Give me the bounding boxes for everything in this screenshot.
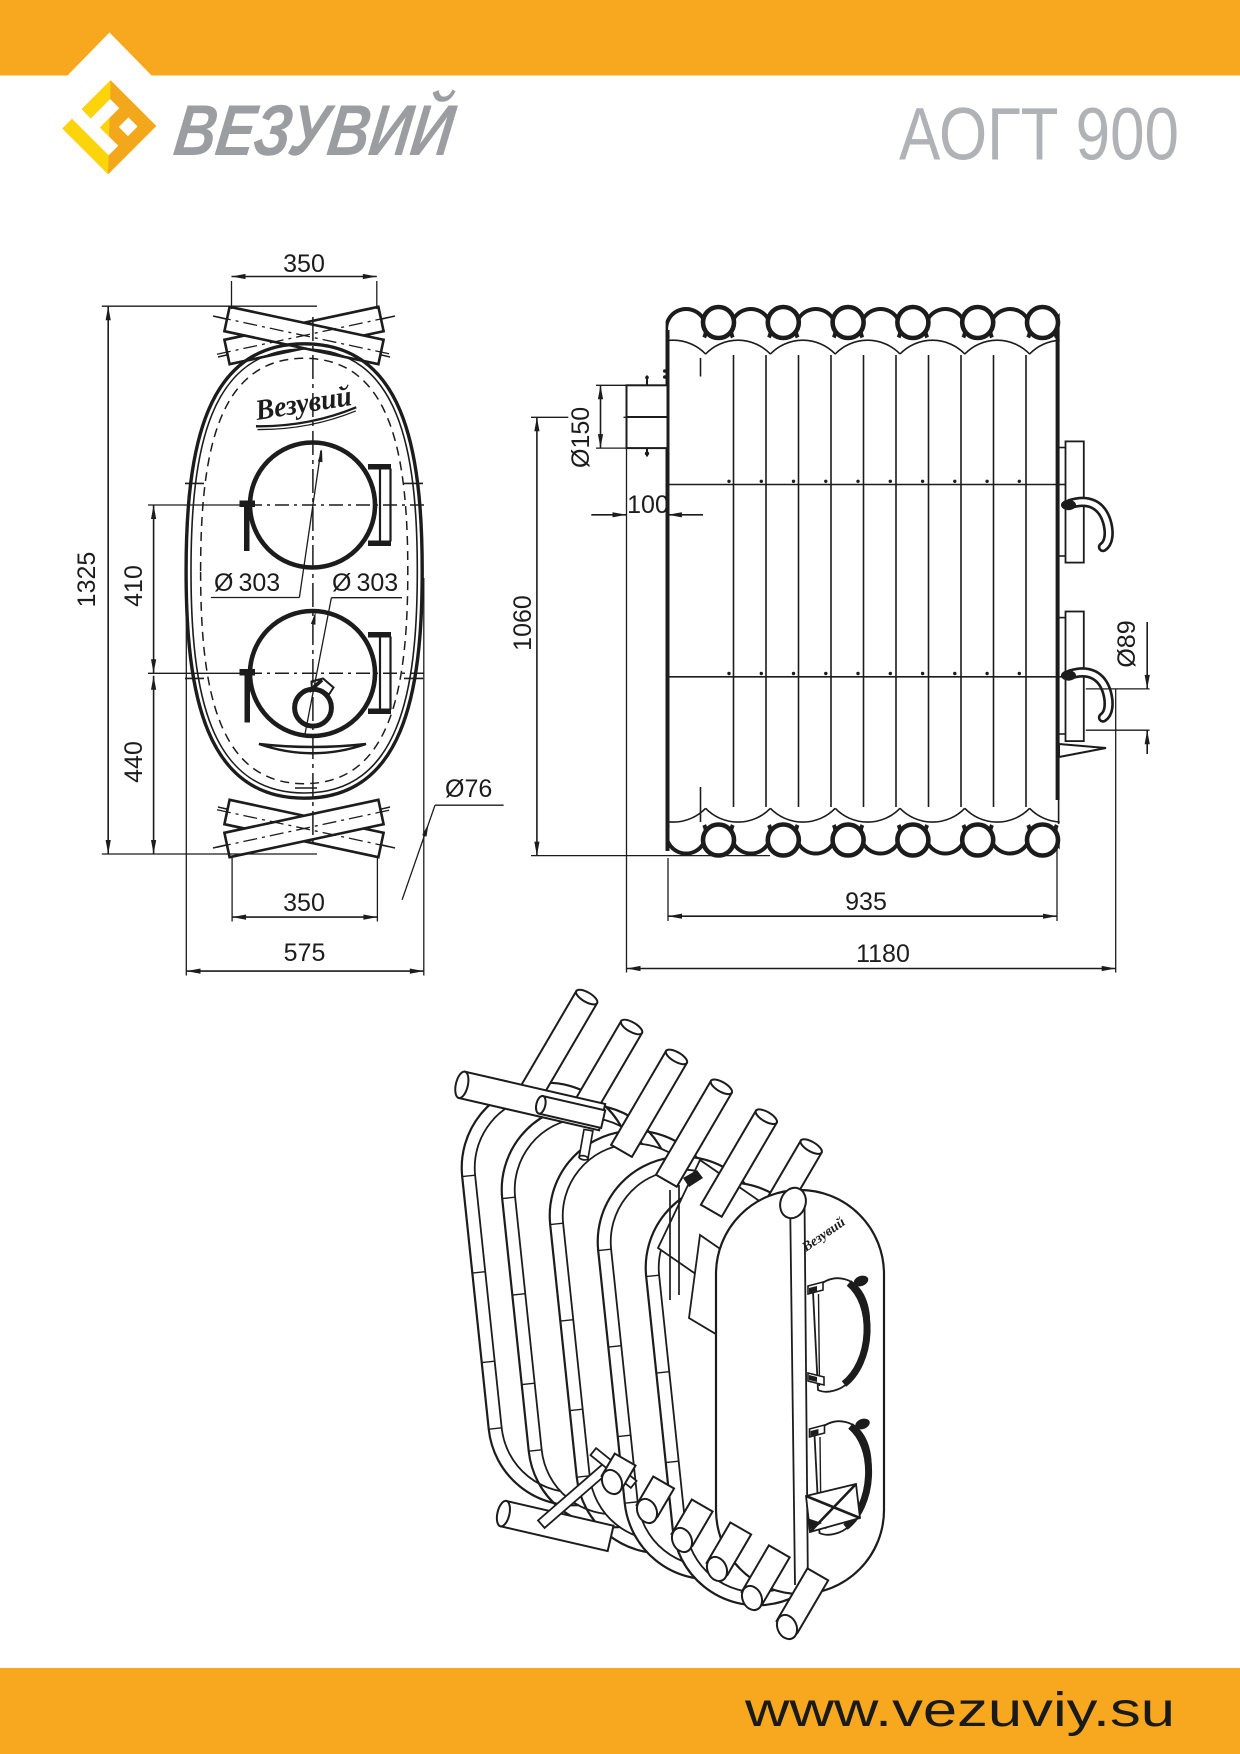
svg-text:1325: 1325 bbox=[73, 552, 101, 608]
svg-text:Ø 303: Ø 303 bbox=[214, 569, 280, 597]
svg-text:575: 575 bbox=[284, 939, 326, 967]
svg-text:Ø 303: Ø 303 bbox=[332, 569, 398, 597]
svg-text:410: 410 bbox=[120, 565, 148, 607]
svg-text:350: 350 bbox=[283, 889, 325, 917]
svg-text:ВЕЗУВИЙ: ВЕЗУВИЙ bbox=[170, 88, 461, 171]
svg-text:1180: 1180 bbox=[856, 940, 910, 968]
svg-text:Ø89: Ø89 bbox=[1113, 620, 1141, 667]
svg-text:935: 935 bbox=[845, 888, 887, 916]
svg-text:Ø76: Ø76 bbox=[445, 775, 492, 803]
svg-text:440: 440 bbox=[120, 741, 148, 783]
svg-text:1060: 1060 bbox=[509, 595, 537, 651]
svg-text:АОГТ 900: АОГТ 900 bbox=[899, 93, 1179, 176]
svg-text:Ø150: Ø150 bbox=[567, 407, 595, 468]
svg-text:350: 350 bbox=[283, 250, 325, 278]
svg-text:100: 100 bbox=[627, 491, 669, 519]
svg-text:Везувий: Везувий bbox=[252, 380, 354, 427]
svg-text:www.vezuviy.su: www.vezuviy.su bbox=[744, 1684, 1175, 1737]
